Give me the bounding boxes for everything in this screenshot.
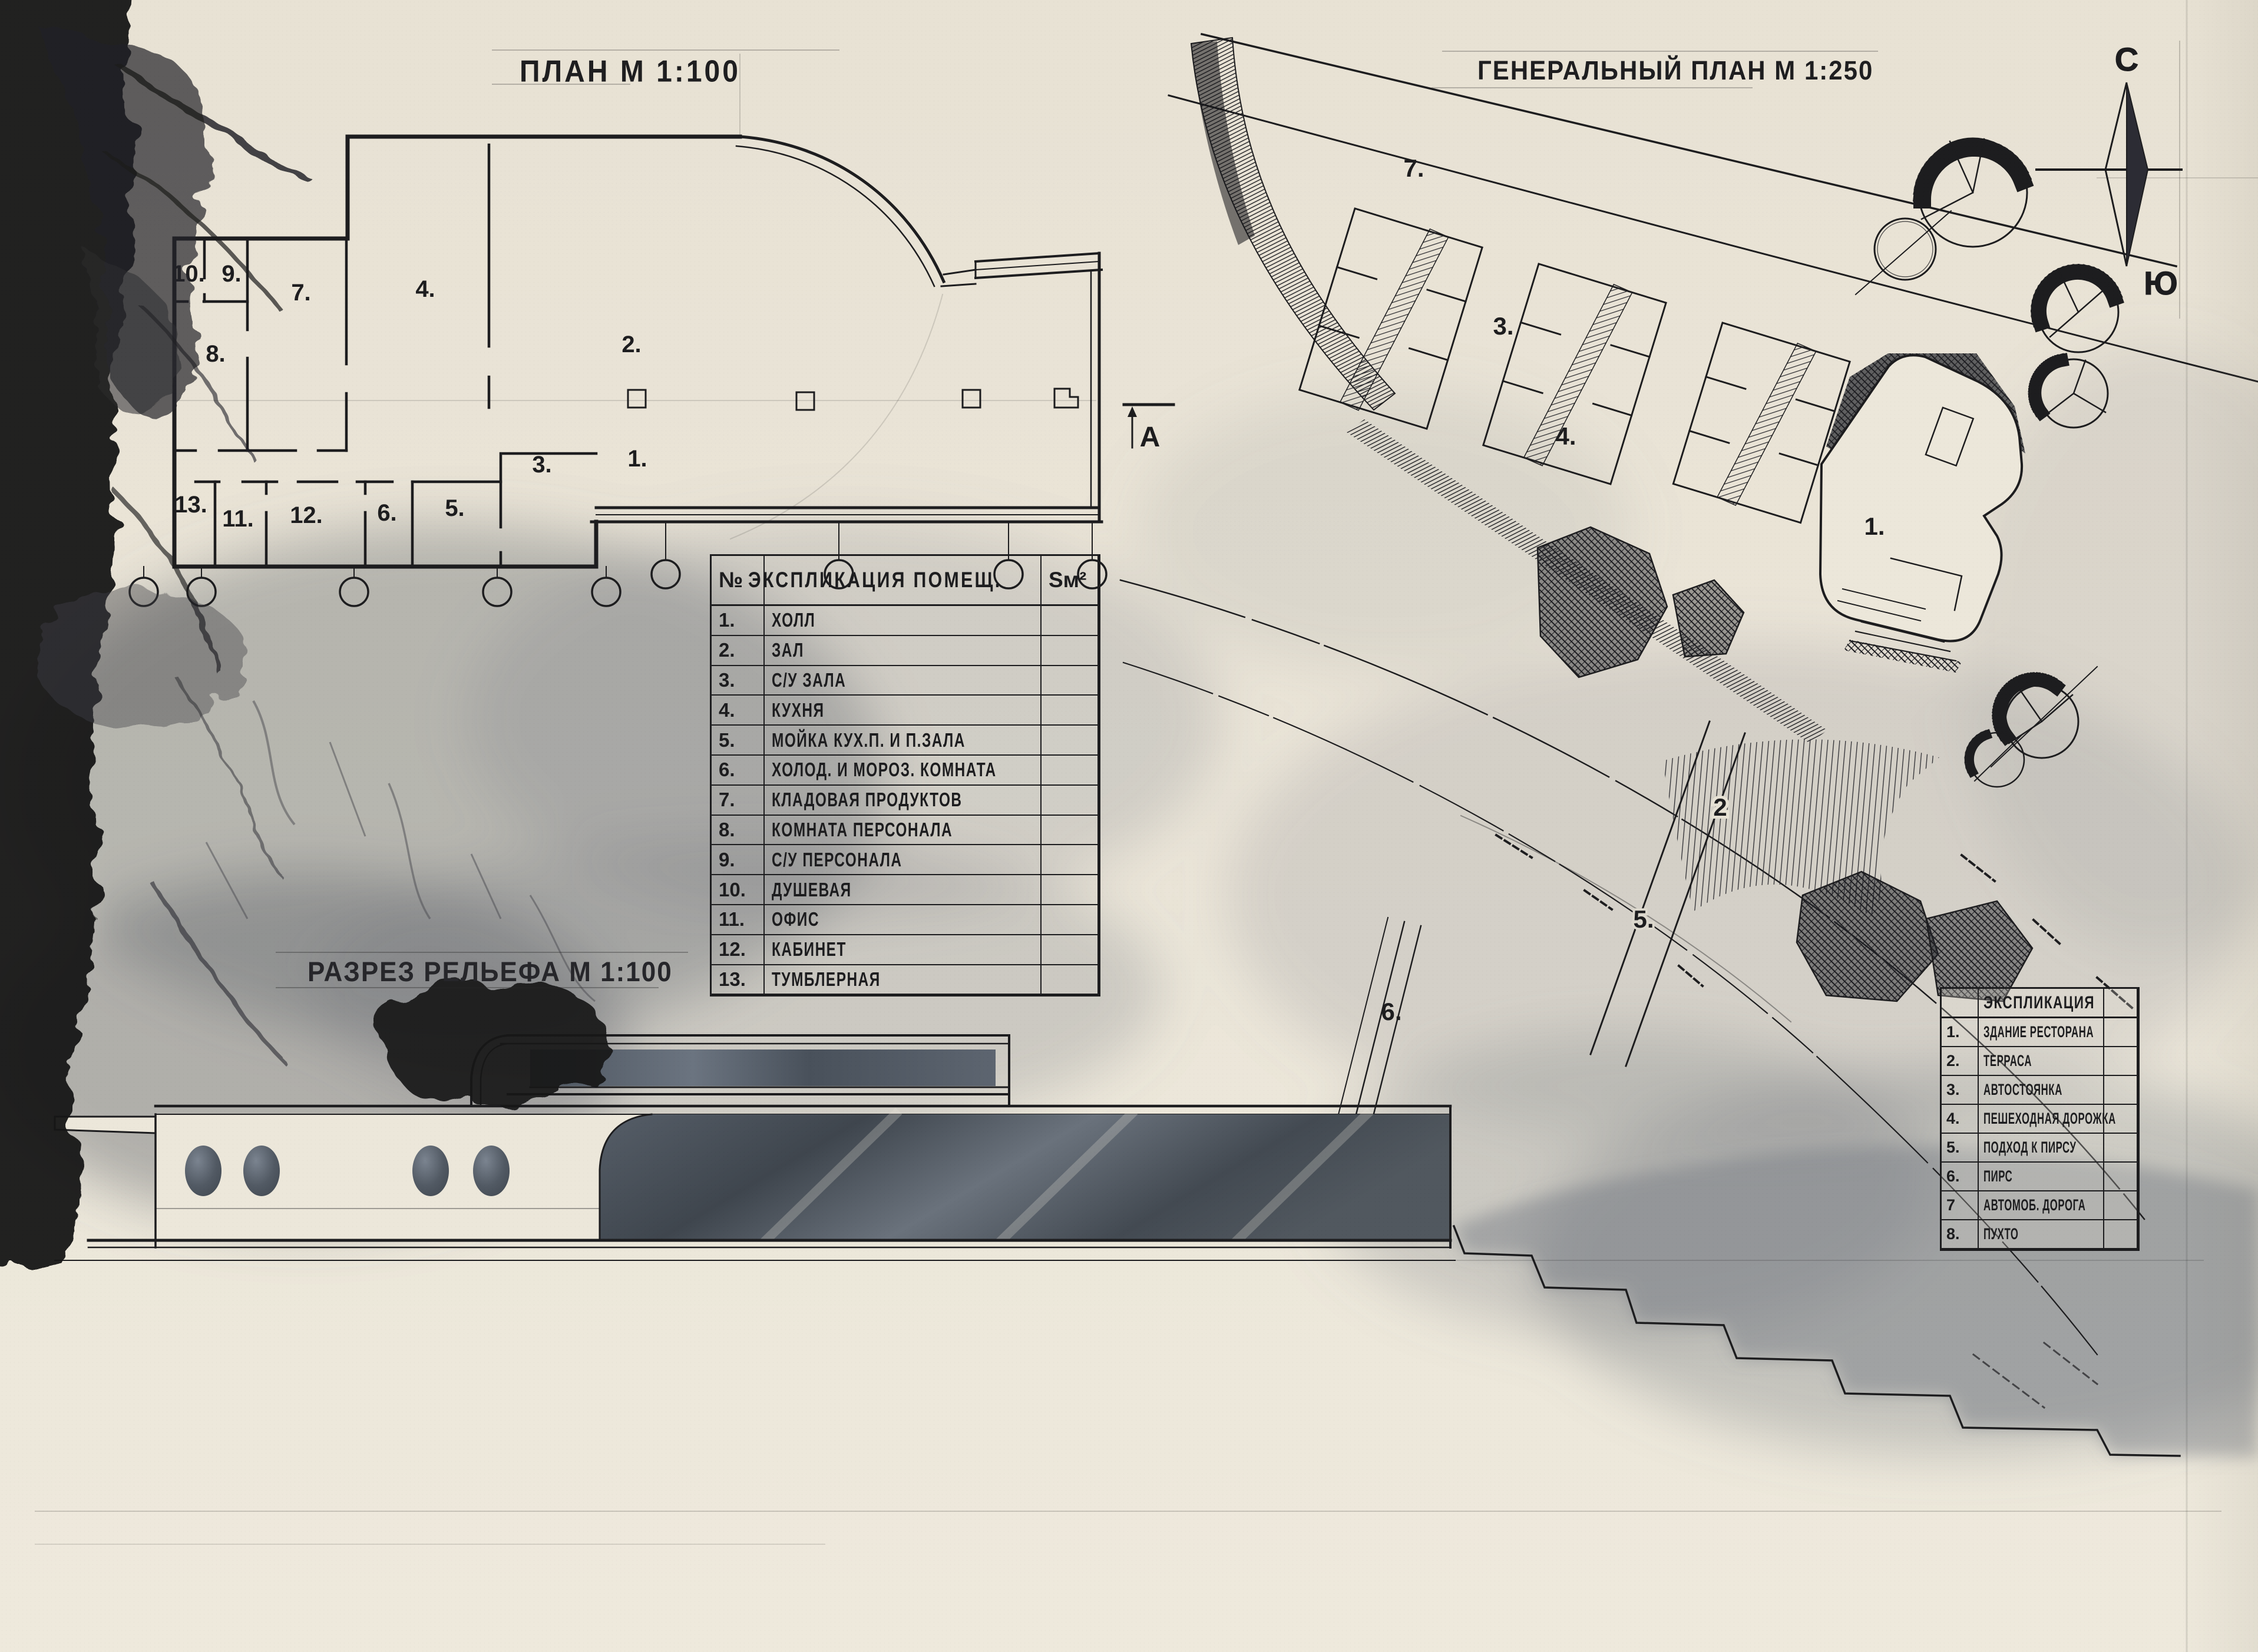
terrain-section-title: РАЗРЕЗ РЕЛЬЕФА М 1:100 [308,956,673,988]
tree-symbol [2038,271,2118,352]
room-label: 12. [290,502,323,528]
room-label: 2. [621,332,641,357]
guide-line [276,952,688,953]
tree-symbol [1856,211,1951,294]
paper-edge-shading [2181,0,2258,1652]
col-header-name: ЭКСПЛИКАЦИЯ ПОМЕЩ. [765,556,1042,606]
site-label-pier-approach: 5. [1633,905,1654,933]
guide-line [492,49,839,51]
room-label: 4. [415,276,435,302]
room-label: 9. [221,261,241,287]
site-label-path: 4. [1555,422,1576,450]
section-marker-letter: А [1140,422,1161,453]
compass-north-label: С [2115,41,2138,78]
guide-line [1442,51,1878,52]
site-label-building: 1. [1864,512,1885,540]
room-label: 8. [206,341,225,367]
site-header-title: ЭКСПЛИКАЦИЯ [1979,989,2104,1018]
floor-plan-title: ПЛАН М 1:100 [520,54,740,89]
site-label-parking: 3. [1493,312,1513,340]
master-plan-title: ГЕНЕРАЛЬНЫЙ ПЛАН М 1:250 [1477,55,1873,86]
site-label-terrace: 2 [1713,793,1727,821]
compass-south-label: Ю [2144,264,2178,302]
site-explication-table: ЭКСПЛИКАЦИЯ 1.ЗДАНИЕ РЕСТОРАНА 2.ТЕРРАСА… [1940,987,2140,1251]
drawing-canvas: С Ю 7. 3. 4. 1. 2 5. 6. [0,0,2258,1652]
room-label: 7. [291,280,310,306]
col-header-area: Sм² [1042,556,1099,606]
drawing-sheet: С Ю 7. 3. 4. 1. 2 5. 6. [0,0,2258,1652]
room-label: 3. [532,452,551,478]
room-label: 6. [377,500,396,526]
room-explication-table: № ЭКСПЛИКАЦИЯ ПОМЕЩ. Sм² 1.ХОЛЛ 2.ЗАЛ 3.… [710,554,1100,997]
guide-line [1432,87,1753,88]
room-label: 5. [445,495,464,521]
site-header-num [1942,989,1979,1018]
tree-symbol [1919,138,2027,247]
floor-plan-drawing [130,54,1173,606]
room-label: 1. [627,446,647,472]
site-label-pier: 6. [1381,998,1401,1025]
room-label: 11. [222,506,253,532]
site-label-road: 7. [1403,154,1424,182]
room-label: 13. [174,492,207,518]
